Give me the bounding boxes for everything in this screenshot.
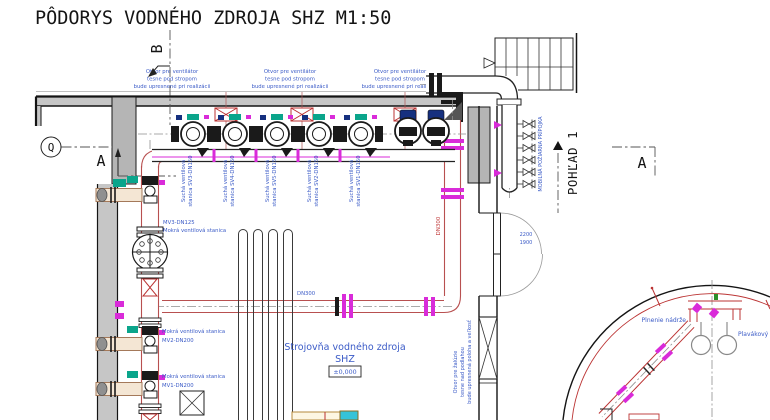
- louver-note-line: bude upresnená poloha a veľkosť: [466, 320, 473, 404]
- sv-label: Suchá ventilová: [222, 160, 229, 202]
- fire-connection-label: MOBILNÁ POŽIARNA PRÍPOJKA: [536, 116, 544, 192]
- tank-wall-outer: [563, 285, 770, 420]
- pipe-horizontal-dn300: DN300: [155, 291, 461, 318]
- pipe-label-dn300-horizontal: DN300: [297, 291, 316, 297]
- door-dim: 2200: [520, 232, 533, 238]
- grid-q-label: Q: [48, 141, 55, 154]
- louver-note-line: tesne nad podlahou: [460, 347, 466, 397]
- view-marker-pohlad-1: POHĽAD 1: [553, 131, 580, 213]
- pipe-stub: [96, 187, 142, 203]
- column-left: [112, 97, 136, 184]
- flow-arrow: [494, 121, 502, 129]
- dry-station-labels: Suchá ventilová stanica SV3-DN150 Suchá …: [180, 155, 362, 207]
- section-a-left-label: A: [96, 152, 105, 170]
- double-door: 2200 1900: [494, 213, 543, 296]
- door-leaf: [494, 213, 501, 254]
- drawing-title: PÔDORYS VODNÉHO ZDROJA SHZ M1:50: [35, 7, 391, 29]
- vent-note-line: tesne pod stropom: [375, 77, 425, 83]
- door-leaf: [494, 254, 501, 296]
- mv3-label: MV3-DN125: [163, 220, 195, 226]
- sv-label: Suchá ventilová: [348, 160, 355, 202]
- louver-opening: [479, 317, 497, 379]
- pipe-label-dn300-vertical: DN300: [436, 216, 442, 235]
- tank-diagonal-pipe: [599, 321, 694, 420]
- floorplan-page: Otvor pre ventilátor tesne pod stropom b…: [0, 0, 770, 420]
- float-valve-label: Plavákový ventil: [738, 331, 770, 338]
- floor-drain: [180, 391, 204, 415]
- mv1-label: Mokrá ventilová stanica: [162, 373, 225, 380]
- vent-note-line: tesne pod stropom: [265, 77, 315, 83]
- pipe-stub: [96, 381, 142, 397]
- room-name: Strojovňa vodného zdroja: [284, 342, 405, 353]
- pipe-stub: [96, 336, 142, 352]
- sv-label: Suchá ventilová: [180, 160, 187, 202]
- vent-note-line: Otvor pre ventilátor: [264, 68, 317, 75]
- view-direction-triangle: [553, 141, 563, 150]
- bottom-equipment: [292, 411, 358, 420]
- section-b-label: B: [148, 44, 166, 53]
- mv1-label: MV1-DN200: [162, 383, 194, 389]
- mv2-label: MV2-DN200: [162, 338, 194, 344]
- floor-level: ±0,000: [333, 369, 356, 376]
- vent-note-line: bude upresnené pri realizácii: [252, 83, 329, 90]
- vent-note-1: Otvor pre ventilátor tesne pod stropom b…: [134, 68, 211, 90]
- view-1-label: POHĽAD 1: [565, 131, 580, 195]
- mv3-label: Mokrá ventilová stanica: [163, 227, 226, 234]
- sv-label: stanica SV5-DN150: [272, 155, 278, 207]
- sv-label: stanica SV4-DN150: [230, 155, 236, 207]
- stair-direction-arrow: [484, 58, 495, 68]
- sv-label: Suchá ventilová: [306, 160, 313, 202]
- section-marker-a-right: A: [612, 147, 655, 177]
- room-label: Strojovňa vodného zdroja SHZ ±0,000: [284, 342, 405, 377]
- door-dim: 1900: [520, 240, 533, 246]
- main-pump-2: [423, 110, 449, 146]
- wall-sleeve: [113, 179, 126, 187]
- pump-row: [138, 110, 466, 162]
- louver-note: Otvor pre žalúzie tesne nad podlahou bud…: [452, 320, 473, 404]
- vent-note-line: Otvor pre ventilátor: [374, 68, 427, 75]
- vent-note-2: Otvor pre ventilátor tesne pod stropom b…: [252, 68, 329, 90]
- vent-note-line: tesne pod stropom: [147, 77, 197, 83]
- flow-arrow: [494, 169, 502, 177]
- gate-valve-handwheel: [133, 227, 168, 278]
- sv-label: stanica SV2-DN150: [314, 155, 320, 207]
- riser-pipes: [239, 230, 293, 420]
- sv-label: stanica SV1-DN150: [356, 155, 362, 207]
- mv2-label: Mokrá ventilová stanica: [162, 328, 225, 335]
- sv-label: Suchá ventilová: [264, 160, 271, 202]
- tank-fill-assembly: [688, 294, 742, 355]
- louver-note-line: Otvor pre žalúzie: [452, 351, 459, 394]
- equipment-cyan: [340, 411, 358, 420]
- floorplan-canvas: Otvor pre ventilátor tesne pod stropom b…: [0, 0, 770, 420]
- room-name: SHZ: [335, 354, 355, 365]
- tank-fill-label: Plnenie nádrže: [642, 317, 687, 324]
- section-a-right-label: A: [637, 154, 646, 172]
- float-ball: [692, 336, 711, 355]
- float-ball: [718, 336, 737, 355]
- water-tank: Plnenie nádrže Plavákový ventil: [563, 280, 770, 420]
- sv-label: stanica SV3-DN150: [188, 155, 194, 207]
- vent-note-line: bude upresnené pri realizácii: [134, 83, 211, 90]
